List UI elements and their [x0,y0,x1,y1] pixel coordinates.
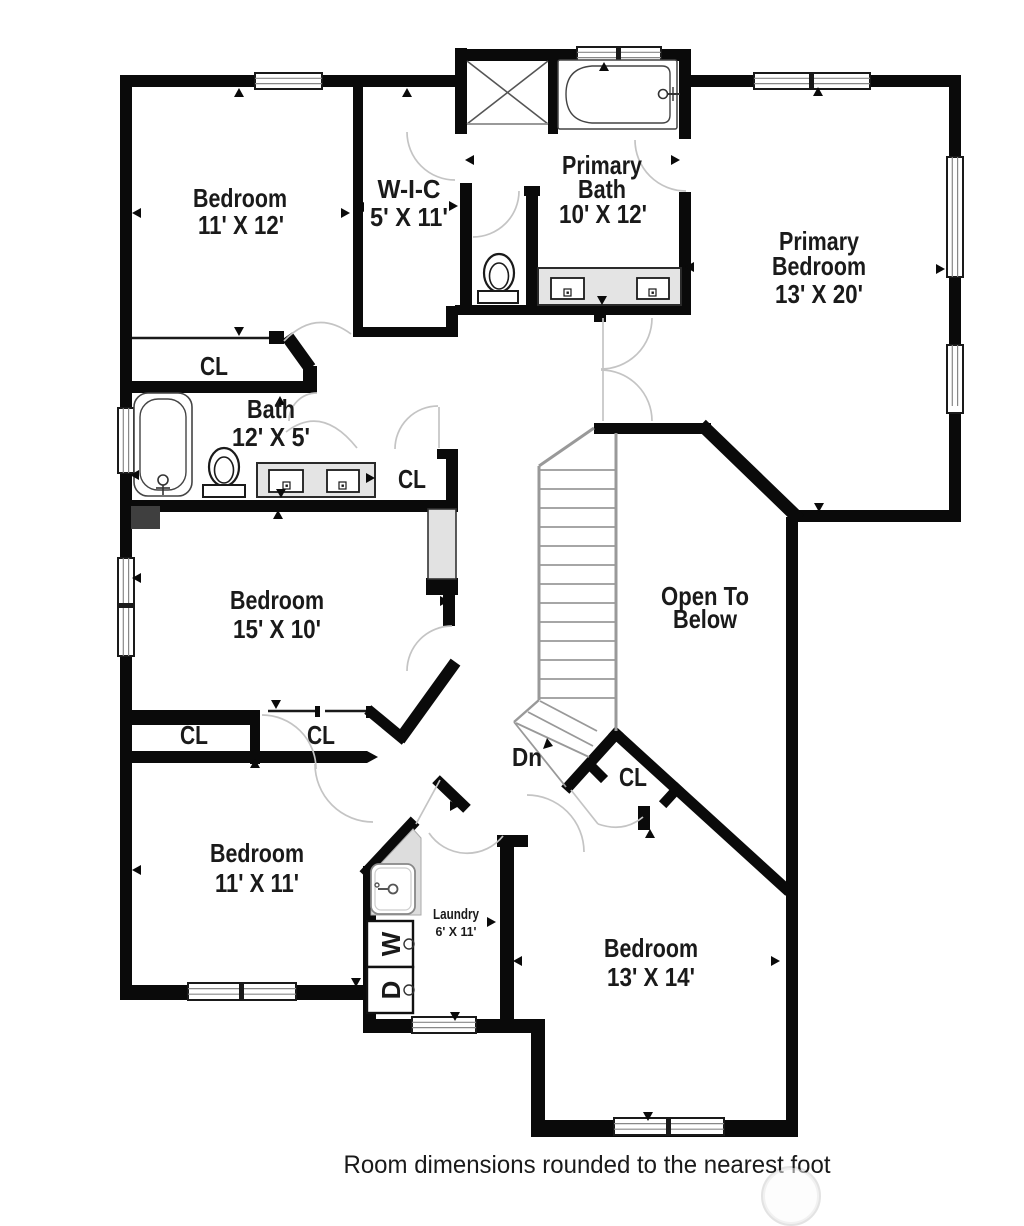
svg-text:Laundry: Laundry [433,906,479,923]
svg-text:Dn: Dn [512,742,542,772]
svg-text:12' X 5': 12' X 5' [232,422,310,452]
svg-text:Below: Below [673,604,738,634]
svg-text:Bedroom: Bedroom [772,251,866,281]
svg-text:CL: CL [307,720,335,750]
svg-text:13' X 14': 13' X 14' [607,962,695,992]
svg-text:Bedroom: Bedroom [604,933,698,963]
svg-text:W: W [376,931,406,956]
svg-text:15' X 10': 15' X 10' [233,614,321,644]
svg-text:CL: CL [398,464,426,494]
svg-text:CL: CL [200,351,228,381]
svg-text:11' X 12': 11' X 12' [198,210,284,240]
svg-text:5' X 11': 5' X 11' [370,202,448,232]
svg-text:CL: CL [180,720,208,750]
svg-text:W-I-C: W-I-C [378,174,441,204]
svg-text:11' X 11': 11' X 11' [215,868,299,898]
svg-text:CL: CL [619,762,647,792]
svg-text:6' X 11': 6' X 11' [436,924,477,939]
svg-text:D: D [376,981,406,1000]
svg-text:13' X 20': 13' X 20' [775,279,863,309]
svg-text:Room dimensions rounded to the: Room dimensions rounded to the nearest f… [344,1151,831,1179]
svg-text:Bedroom: Bedroom [193,183,287,213]
svg-text:Bedroom: Bedroom [210,838,304,868]
svg-text:Bedroom: Bedroom [230,585,324,615]
svg-text:10' X 12': 10' X 12' [559,199,647,229]
svg-text:Bath: Bath [247,394,295,424]
